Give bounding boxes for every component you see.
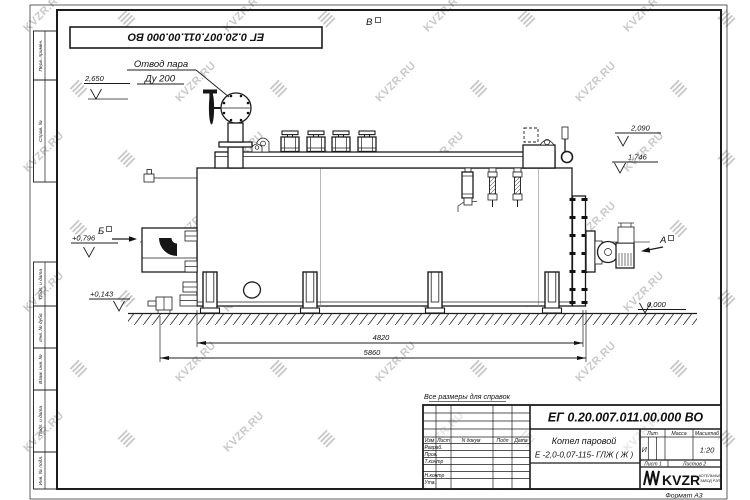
sheet-number: Лист 1 (643, 462, 662, 468)
steam-outlet-label-line1: Отвод пара (134, 59, 188, 70)
rear-flange-wall (570, 196, 588, 306)
doc-number-box: ЕГ 0.20.007.011.00.000 ВО (70, 27, 322, 48)
massa-label: Масса (671, 431, 686, 437)
elevation-0796: +0,796 (71, 234, 118, 258)
elevation-0796-value: +0,796 (72, 234, 96, 243)
col-header-data: Дата (513, 438, 527, 444)
role-nkontr: Н.контр (425, 473, 445, 479)
logo-text: KVZR (662, 472, 700, 488)
elevation-2650-value: 2,650 (84, 74, 105, 83)
elevation-0143-value: +0,143 (90, 290, 114, 299)
designation: ЕГ 0.20.007.011.00.000 ВО (548, 411, 703, 425)
boiler-assembly-drawing: Перв. примен. Справ. № Подп. и дата Инв.… (0, 0, 750, 500)
drawing-sheet-page: { "sheet": { "doc_number": "ЕГ 0.20.007.… (0, 0, 750, 500)
margin-label-inv-podl: Инв. № подл. (38, 456, 44, 486)
elevation-0000: 0,000 (638, 300, 686, 313)
product-name-line1: Котел паровой (552, 436, 617, 446)
title-block: Все размеры для справок Изм Лист N докум (423, 392, 722, 500)
rear-fan-unit (586, 223, 634, 272)
rear-hook-ring (562, 152, 573, 163)
dimension-4820: 4820 (197, 333, 583, 345)
ground-hatch (128, 314, 697, 326)
view-b-marker: Б (98, 226, 137, 242)
lit-label: Лит (646, 431, 658, 437)
product-name-line2: Е -2,0-0,07-115- ГЛЖ ( Ж ) (535, 451, 634, 460)
dimension-4820-value: 4820 (373, 333, 391, 342)
view-b-label: Б (98, 226, 104, 237)
top-deck (215, 152, 555, 168)
logo-subtext-2: ЗАВОД РЭП (700, 479, 721, 483)
role-razrab: Разраб. (425, 445, 443, 451)
elevation-2090: 2,090 (615, 124, 661, 147)
col-header-list: Лист (436, 438, 450, 444)
view-a-marker: А (641, 235, 674, 253)
role-tkontr: Т.контр (425, 459, 444, 465)
margin-label-podp-data-1: Подп. и дата (38, 269, 44, 299)
steam-outlet-label-line2: Ду 200 (144, 74, 176, 85)
dimension-5860-value: 5860 (364, 348, 382, 357)
safety-valves (281, 131, 376, 152)
margin-label-vzam-inv: Взам. инв. № (38, 354, 44, 384)
elevation-2650: 2,650 (84, 74, 130, 99)
margin-label-inv-dubl: Инв. № дубл. (38, 312, 44, 342)
view-v-marker: В (366, 17, 381, 28)
col-header-izm: Изм (425, 438, 435, 444)
col-header-podp: Подп (497, 438, 509, 444)
margin-label-sprav-no: Справ. № (38, 120, 44, 142)
margin-label-perv-primen: Перв. примен. (38, 40, 44, 72)
masshtab-value: 1:20 (700, 446, 715, 455)
elevation-2090-value: 2,090 (630, 124, 651, 133)
left-margin-stamp-cells: Перв. примен. Справ. № Подп. и дата Инв.… (34, 31, 58, 489)
margin-label-podp-data-2: Подп. и дата (38, 406, 44, 436)
elevation-0143: +0,143 (89, 290, 130, 312)
sheets-total: Листов 2 (682, 462, 706, 468)
pipe-lug (252, 144, 262, 152)
elevation-1746: 1,746 (612, 153, 658, 174)
masshtab-label: Масштаб (695, 431, 720, 437)
reference-note: Все размеры для справок (424, 392, 511, 401)
view-v-label: В (366, 17, 373, 28)
dimension-5860: 5860 (160, 348, 586, 360)
role-prov: Пров. (425, 452, 438, 458)
front-ground-fitting (148, 297, 172, 313)
view-a-label: А (659, 235, 666, 246)
format-label: Формат А3 (665, 493, 702, 500)
col-header-dokum: N докум (462, 438, 481, 444)
top-left-tap (144, 170, 197, 183)
rear-deck-fittings (523, 127, 573, 168)
role-utv: Утв. (425, 480, 436, 486)
logo-subtext-1: КОТЕЛЬНЫЙ (699, 474, 722, 478)
doc-number-inverted: ЕГ 0.20.007.011.00.000 ВО (127, 31, 264, 43)
elevation-1746-value: 1,746 (628, 153, 648, 162)
